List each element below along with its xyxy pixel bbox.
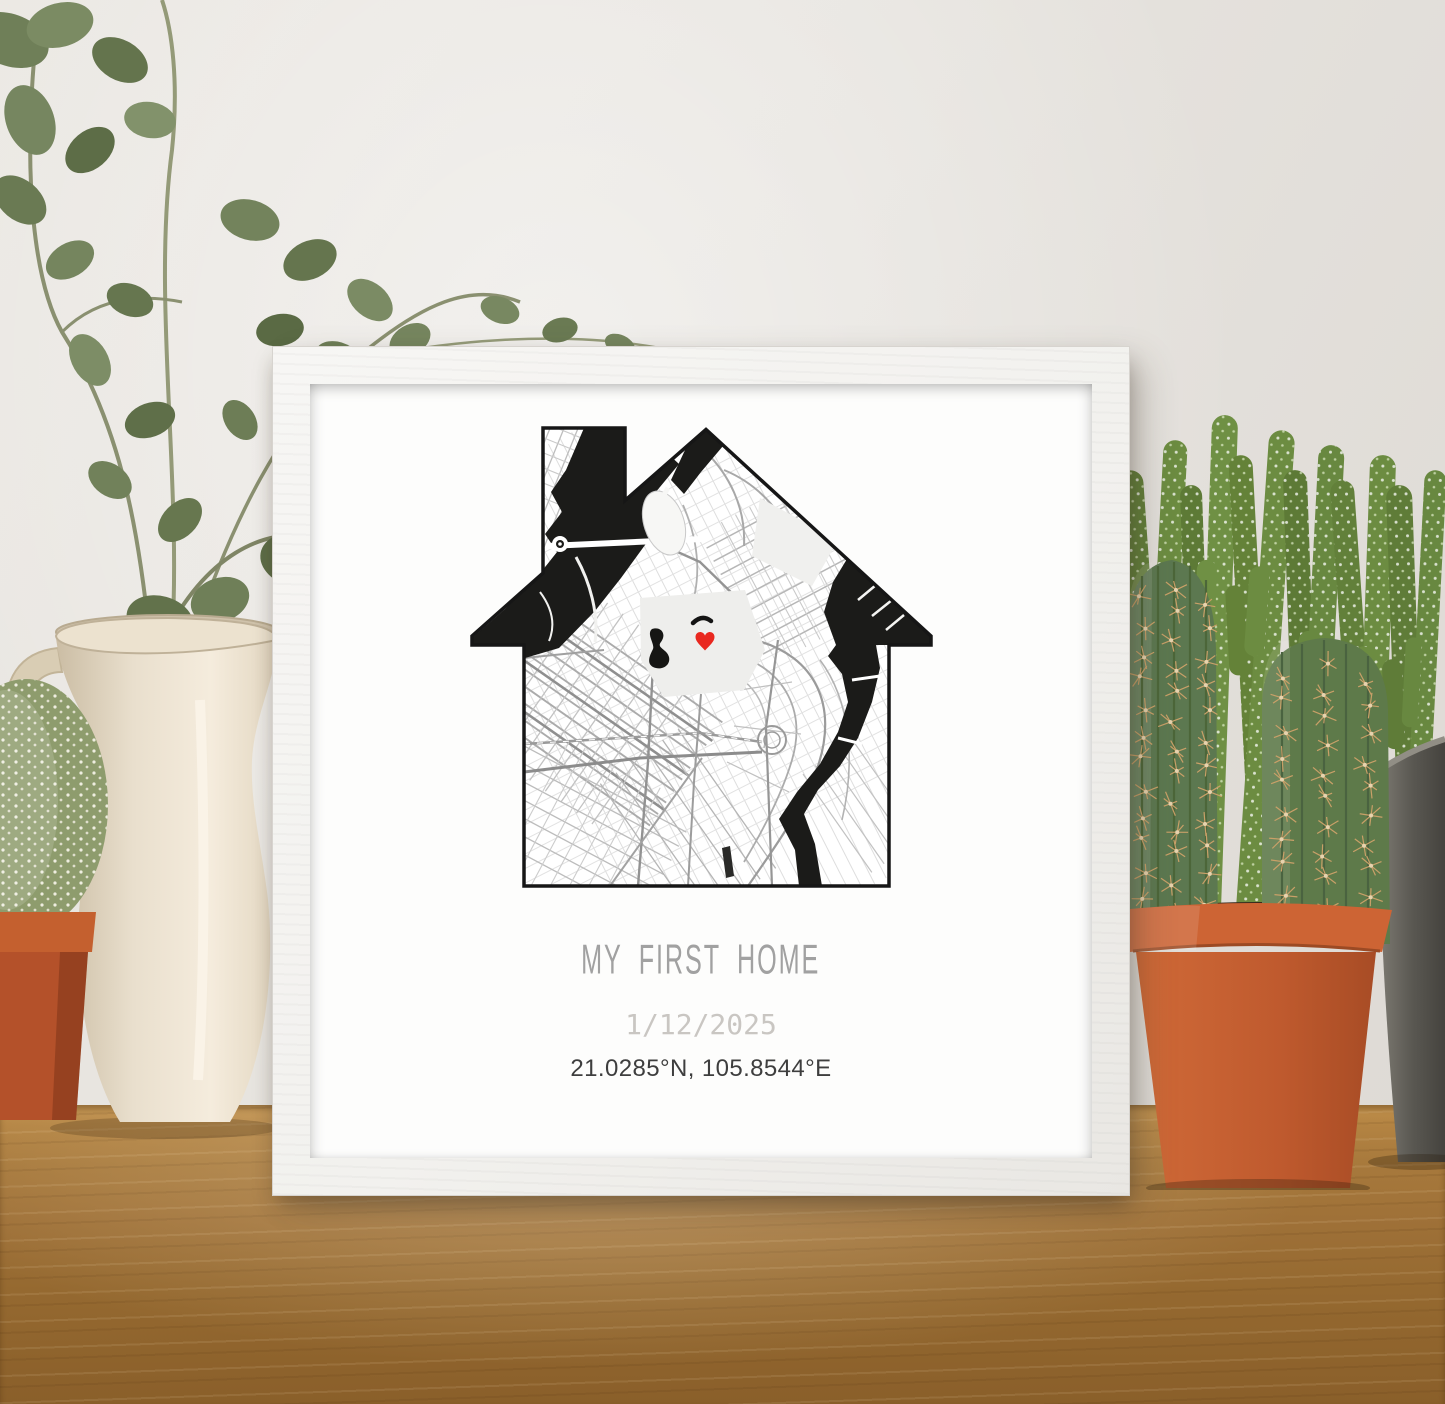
print-title-text: MY FIRST HOME <box>582 939 821 981</box>
print-paper: MY FIRST HOME 1/12/2025 21.0285°N, 105.8… <box>310 384 1092 1158</box>
print-coordinates: 21.0285°N, 105.8544°E <box>310 1056 1092 1082</box>
print-title: MY FIRST HOME <box>310 940 1092 980</box>
picture-frame: MY FIRST HOME 1/12/2025 21.0285°N, 105.8… <box>272 346 1130 1196</box>
right-terracotta-pot <box>1120 903 1392 1190</box>
scene: MY FIRST HOME 1/12/2025 21.0285°N, 105.8… <box>0 0 1445 1404</box>
print-date: 1/12/2025 <box>310 1010 1092 1040</box>
pitcher-highlight <box>198 700 204 1080</box>
left-plant-group <box>0 600 310 1200</box>
house-map <box>310 384 1092 1158</box>
right-plant-group <box>1120 380 1445 1190</box>
left-terracotta-pot <box>0 912 96 1120</box>
